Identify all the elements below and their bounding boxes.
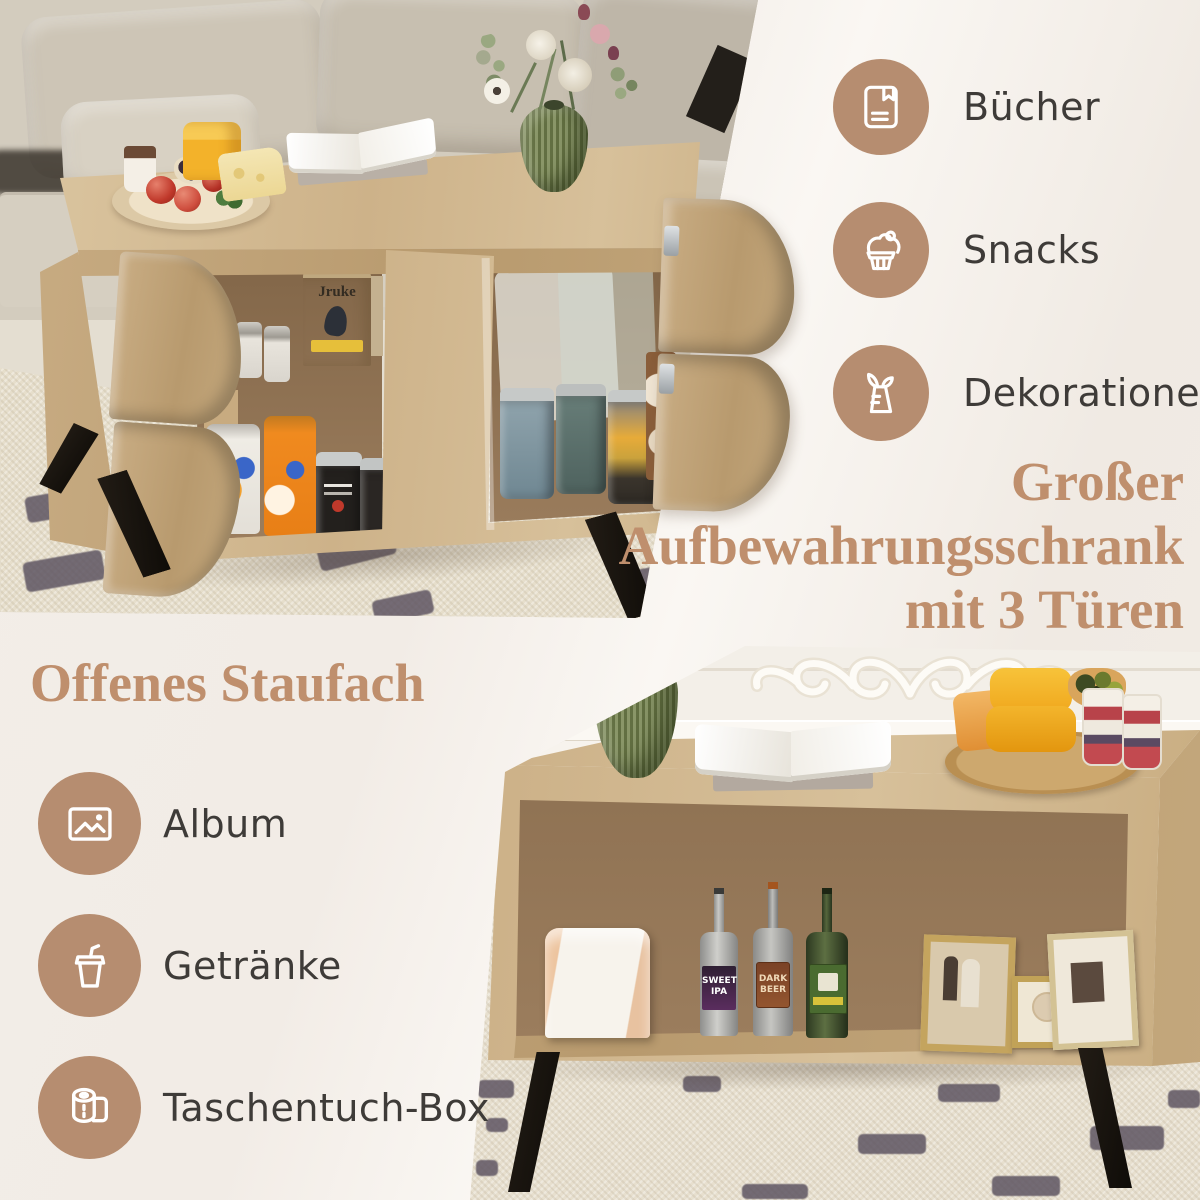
coffee-bag: Jruke	[303, 272, 371, 366]
spice-jar-black	[316, 452, 362, 542]
beer-bottle-ipa: SWEET IPA	[700, 888, 738, 1036]
coffee-bag-back	[371, 276, 383, 356]
feature-label: Album	[163, 802, 287, 846]
rug-dash	[992, 1176, 1060, 1196]
open-book	[286, 116, 441, 191]
toilet-paper-icon	[61, 1079, 119, 1137]
door-hinge	[663, 226, 679, 257]
book-pages	[695, 724, 793, 783]
picture-frame-family	[1047, 930, 1139, 1050]
rug-dash	[858, 1134, 926, 1154]
heading-storage-cabinet: Großer Aufbewahrungsschrank mit 3 Türen	[619, 450, 1184, 641]
white-rose	[526, 30, 556, 60]
feature-row-dekorationen: Dekorationen	[833, 345, 1200, 441]
apple-red	[174, 186, 201, 212]
feature-label: Bücher	[963, 85, 1100, 129]
white-anemone	[484, 78, 510, 104]
coffee-bag-brand: Jruke	[303, 284, 371, 301]
door-hinge	[659, 364, 675, 395]
storage-tin-blue	[500, 388, 554, 499]
feature-label: Dekorationen	[963, 371, 1200, 415]
feature-label: Getränke	[163, 944, 342, 988]
cupcake-icon	[854, 223, 908, 277]
beer-bottle-dark: DARK BEER	[753, 882, 793, 1036]
door-leaf	[109, 251, 248, 428]
book-icon	[854, 80, 908, 134]
snack-can-orange	[264, 416, 316, 536]
apple-red	[146, 176, 176, 204]
yellow-cheese-wheel-lower	[986, 706, 1076, 752]
coffee-bag-band	[311, 340, 363, 352]
white-rose	[558, 58, 592, 92]
pink-flower	[590, 24, 610, 44]
rug-dash	[1168, 1090, 1200, 1108]
feature-badge	[38, 772, 141, 875]
picture-frame-wedding	[920, 934, 1016, 1053]
feature-badge	[833, 202, 929, 298]
heading-open-compartment: Offenes Staufach	[30, 652, 424, 714]
jar-label-text-lines	[324, 484, 352, 487]
beer-bottle-green	[806, 888, 848, 1038]
feature-row-taschentuch-box: Taschentuch-Box	[38, 1056, 490, 1159]
cabinet-left-door	[96, 251, 270, 611]
feature-row-buecher: Bücher	[833, 59, 1100, 155]
tissue-box	[545, 928, 650, 1038]
greenery	[598, 60, 651, 109]
feature-badge	[833, 345, 929, 441]
vase-mouth	[624, 648, 648, 659]
door-leaf	[658, 198, 797, 357]
feature-row-getraenke: Getränke	[38, 914, 342, 1017]
feature-row-snacks: Snacks	[833, 202, 1100, 298]
book-pages	[791, 721, 891, 782]
feature-label: Taschentuch-Box	[163, 1086, 490, 1130]
heading-line: Aufbewahrungsschrank	[619, 514, 1184, 578]
parfait-cup	[1082, 688, 1124, 766]
feature-badge	[38, 914, 141, 1017]
rug-dash	[476, 1160, 498, 1176]
snack-can	[264, 326, 290, 382]
bottle-label: SWEET IPA	[702, 966, 736, 1010]
heading-line: Großer	[619, 450, 1184, 514]
heading-line: mit 3 Türen	[619, 578, 1184, 642]
cheese-block	[217, 146, 287, 202]
book-pages	[286, 133, 364, 174]
parfait-cup	[1122, 694, 1162, 770]
mauve-bud	[578, 4, 590, 20]
photo-figures	[943, 956, 959, 1000]
album-icon	[61, 795, 119, 853]
open-book	[695, 716, 890, 796]
flower-bouquet	[462, 0, 662, 140]
coffee-bag-fish-art	[323, 305, 349, 338]
storage-tin-teal	[556, 384, 606, 494]
vase-icon	[854, 366, 908, 420]
feature-badge	[833, 59, 929, 155]
bottle-label-green	[809, 964, 847, 1014]
jar-label-dot	[332, 500, 344, 512]
mauve-bud	[608, 46, 619, 60]
feature-row-album: Album	[38, 772, 287, 875]
photo-family	[1071, 961, 1105, 1003]
label-art	[818, 973, 838, 991]
feature-label: Snacks	[963, 228, 1100, 272]
drink-cup-icon	[61, 937, 119, 995]
bottle-label: DARK BEER	[756, 962, 790, 1008]
photo-figures	[961, 959, 981, 1008]
label-band-yellow	[813, 997, 843, 1005]
feature-badge	[38, 1056, 141, 1159]
rug-dash	[742, 1184, 808, 1199]
product-infographic: Jruke	[0, 0, 1200, 1200]
